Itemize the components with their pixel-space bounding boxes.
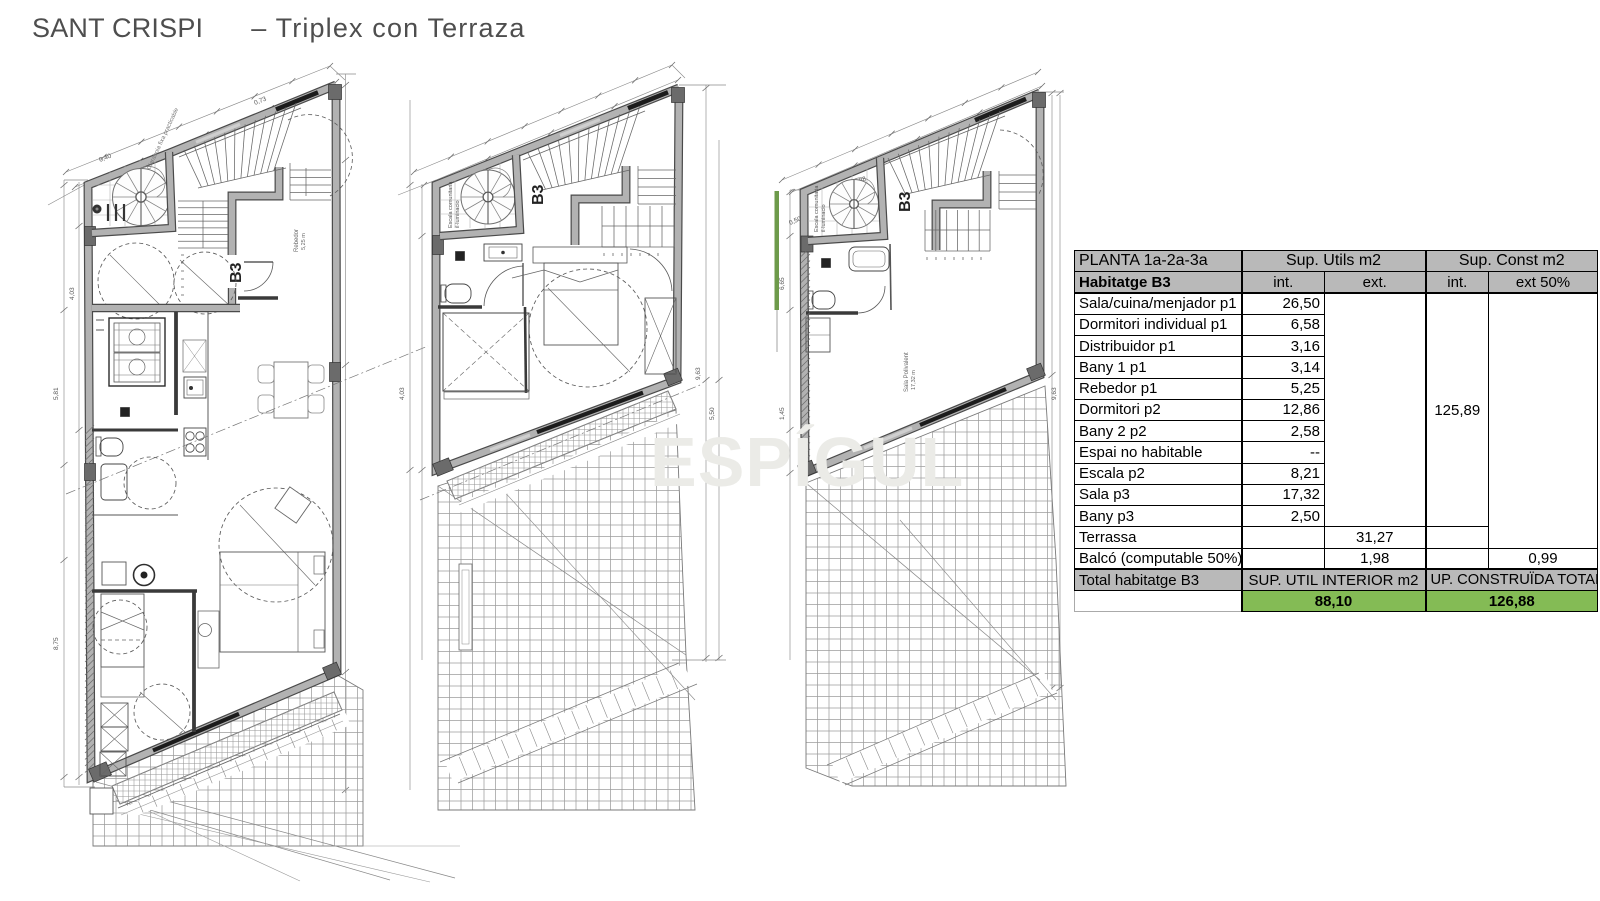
svg-text:Claraboia fixa practicable: Claraboia fixa practicable <box>146 107 180 171</box>
svg-text:5,81: 5,81 <box>53 387 60 400</box>
svg-text:Rebedor: Rebedor <box>294 229 300 252</box>
svg-text:Escala comunitaria: Escala comunitaria <box>448 181 454 228</box>
svg-text:B3: B3 <box>530 184 547 205</box>
svg-text:4,03: 4,03 <box>69 287 76 300</box>
svg-text:il·luminacio: il·luminacio <box>821 204 827 232</box>
svg-text:0,73: 0,73 <box>253 95 268 106</box>
svg-text:ESPÍGUL: ESPÍGUL <box>650 423 964 501</box>
svg-text:8,75: 8,75 <box>53 637 60 650</box>
svg-text:9,63: 9,63 <box>695 367 702 380</box>
svg-text:5,25 m: 5,25 m <box>301 233 307 250</box>
svg-text:B3: B3 <box>897 191 914 212</box>
svg-text:4,03: 4,03 <box>399 387 406 400</box>
svg-text:6,65: 6,65 <box>779 277 786 290</box>
svg-text:Sala Polivalent: Sala Polivalent <box>904 352 910 392</box>
svg-text:1,45: 1,45 <box>779 407 786 420</box>
svg-text:il·luminacio: il·luminacio <box>455 200 461 228</box>
svg-text:5,50: 5,50 <box>709 407 716 420</box>
svg-text:9,63: 9,63 <box>1051 387 1058 400</box>
svg-text:Escala comunitaria: Escala comunitaria <box>814 185 820 232</box>
svg-text:17,32 m: 17,32 m <box>911 370 917 390</box>
